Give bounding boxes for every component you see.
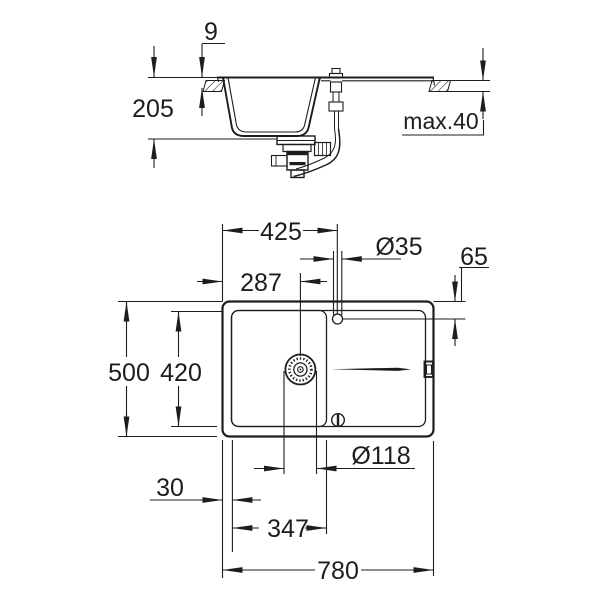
dim-faucet-from-left-label: 425 — [260, 218, 302, 246]
counter-hatch-right — [429, 81, 490, 92]
bowl-outline — [232, 311, 327, 427]
sink-section-profile — [148, 78, 435, 137]
dim-bowl-depth-label: 205 — [132, 95, 174, 123]
drain-strainer — [285, 355, 315, 385]
dim-faucet-from-top — [455, 268, 489, 347]
dim-drain-diameter-label: Ø118 — [351, 442, 410, 470]
dim-faucet-from-top-label: 65 — [460, 243, 488, 271]
knob-hole — [332, 414, 345, 427]
dim-overall-depth-label: 500 — [108, 359, 150, 387]
dim-bowl-width-label: 347 — [267, 515, 309, 543]
dim-left-rim-width-label: 30 — [156, 474, 184, 502]
dim-inner-depth-label: 420 — [160, 359, 202, 387]
drain-assembly-section — [272, 136, 331, 178]
sink-dimension-drawing: 9 205 max.40 425 Ø35 65 287 500 420 Ø118… — [0, 0, 600, 600]
dim-rim-height-label: 9 — [204, 18, 218, 46]
dim-rim-height — [202, 44, 225, 117]
dim-overall-width-label: 780 — [317, 557, 359, 585]
dim-drain-from-left-label: 287 — [240, 269, 282, 297]
faucet-hole — [333, 314, 343, 324]
drainer-groove — [331, 368, 411, 371]
technical-drawing: 9 205 max.40 425 Ø35 65 287 500 420 Ø118… — [0, 0, 600, 600]
counter-hatch-left — [203, 81, 225, 92]
dim-faucet-hole-diameter-label: Ø35 — [375, 233, 422, 261]
dim-counter-thickness-label: max.40 — [403, 108, 478, 134]
